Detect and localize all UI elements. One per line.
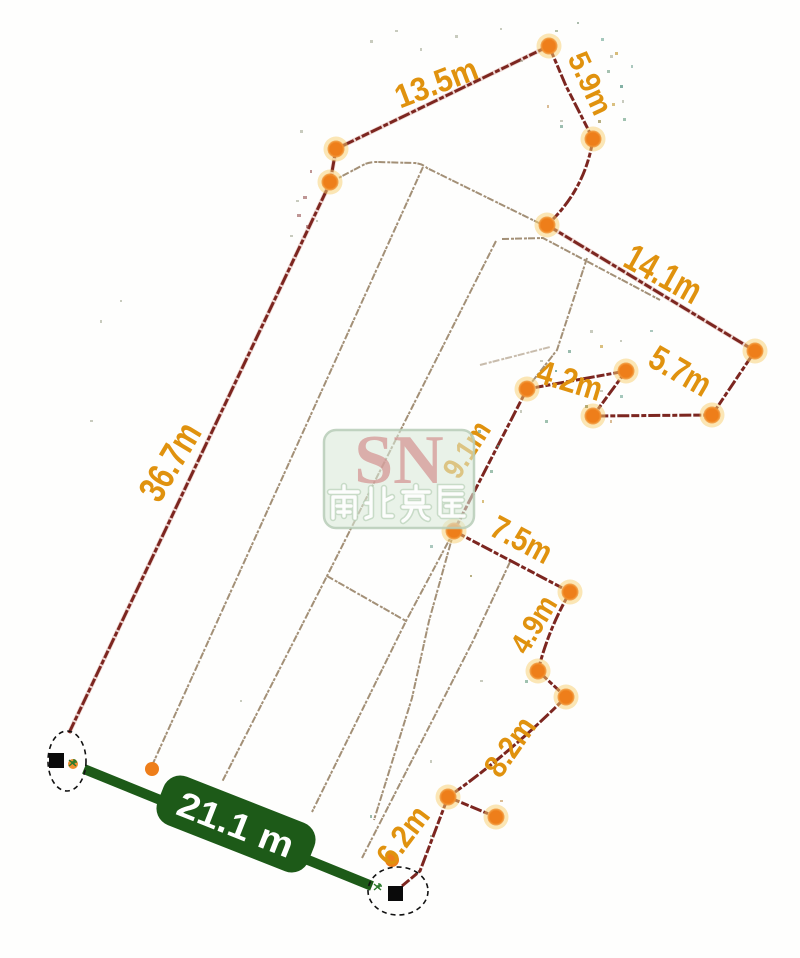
svg-text:SN: SN — [354, 422, 443, 499]
